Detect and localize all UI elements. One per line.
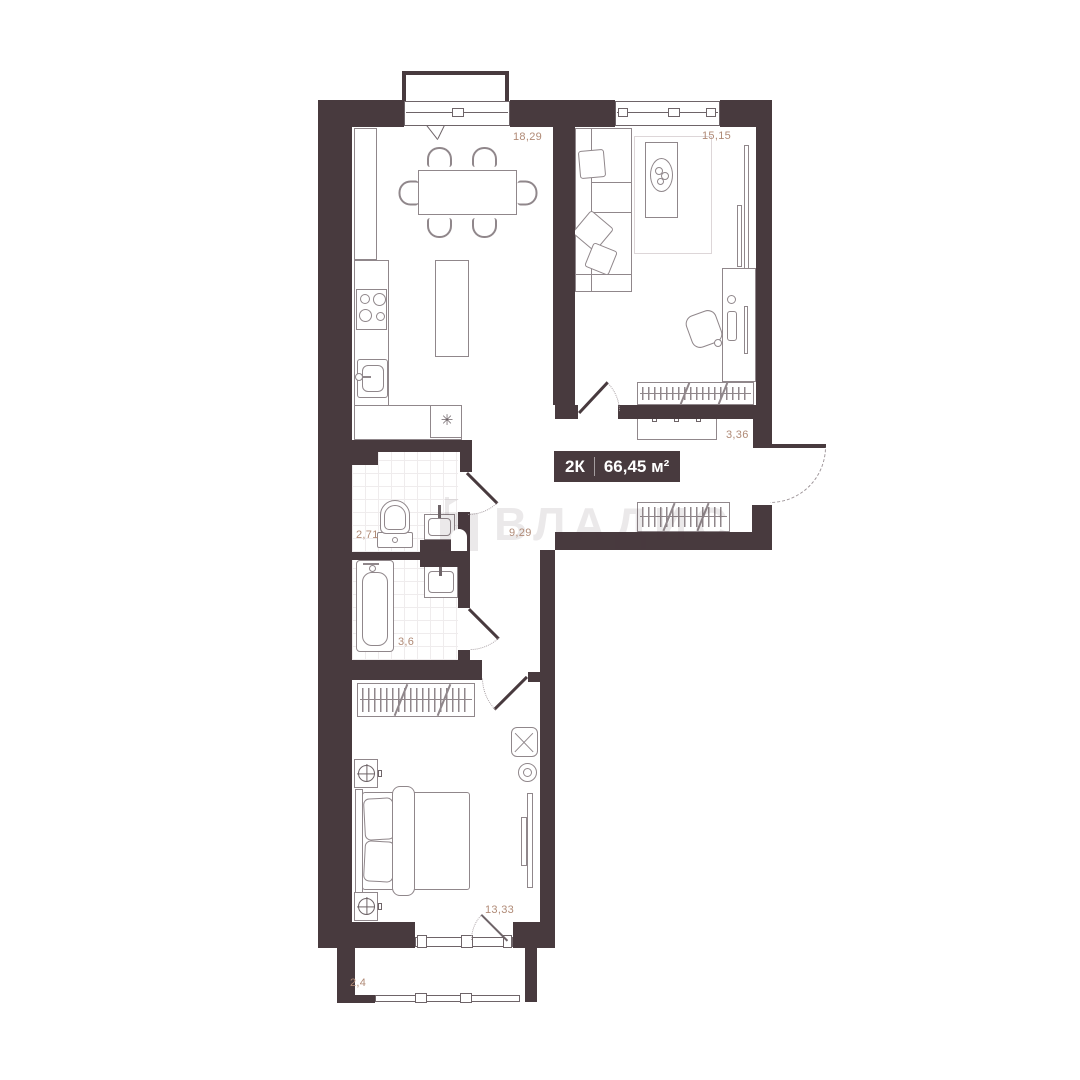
dining-table [418,170,517,215]
bedroom-shelf-midline [360,699,472,700]
wall-left [318,100,352,948]
balcony-top-box [402,71,509,104]
window-tick [417,935,427,948]
dining-chair [472,147,497,167]
stove-burner [373,293,386,306]
wall-jamb [460,440,472,472]
dining-chair [427,147,452,167]
wall-balcony-right [525,948,537,1002]
kitchen-counter-top [354,128,377,260]
nightstand-knob [378,903,382,910]
wall-bath-right [458,560,470,608]
dining-chair [472,218,497,238]
wall-living-bottom [618,405,753,419]
watermark: ВЛАДИС [436,497,734,551]
wall-top [318,100,404,127]
area-label-bathroom: 3,6 [398,636,414,648]
wall-balcony-bottom [337,995,375,1003]
wall-entrance-jamb [752,505,772,532]
wall-bath-right [458,650,470,660]
wall-bedroom-bottom [318,922,415,948]
wall-corridor-right [540,550,555,922]
stove-burner [376,312,385,321]
bathroom-faucet [439,567,442,576]
apartment-badge: 2К 66,45 м² [554,451,680,482]
stove-burner [359,309,372,322]
area-label-hallway: 3,36 [726,429,749,441]
wall-kitchen-bottom [352,440,472,452]
kitchen-sink-basin [362,365,384,392]
bed-blanket [392,786,415,896]
window-tick [460,993,472,1003]
area-label-living: 15,15 [702,130,731,142]
wall-right [756,100,772,448]
sofa-seat-line [591,212,632,213]
wall-bath-bedroom [352,660,482,680]
sofa-pillow [578,149,606,179]
badge-rooms: 2К [565,457,585,477]
nightstand-knob [378,770,382,777]
area-label-bedroom: 13,33 [485,904,514,916]
dining-chair [427,218,452,238]
area-label-balcony: 2,4 [350,977,366,989]
watermark-building-icon [436,497,482,551]
badge-area: 66,45 м² [604,457,670,477]
window-tick [452,108,464,117]
nightstand-lamp [358,898,375,915]
wall-balcony-left [337,948,355,1002]
kitchen-faucet [355,373,363,381]
sofa-seat-line [591,182,632,183]
window-tick [618,108,628,117]
wall-living-bottom [555,405,578,419]
wall-wc-bath [352,552,420,560]
bed-pillow [363,797,395,841]
watermark-text: ВЛАДИС [494,497,734,551]
bathtub-inner [362,572,388,646]
decor-item [657,178,664,185]
badge-divider [594,457,595,476]
bedroom-wardrobe-door [521,817,527,866]
kitchen-faucet-stem [363,376,371,378]
desk-monitor [744,306,748,354]
toilet-button [392,537,398,543]
area-label-wc: 2,71 [356,529,379,541]
area-label-kitchen: 18,29 [513,131,542,143]
dining-chair [518,181,538,206]
bookshelf-midline [640,393,751,394]
toilet-bowl-inner [384,505,406,530]
fridge-icon: ✳ [437,411,457,431]
kitchen-island [435,260,469,357]
bed-headboard [355,789,363,893]
nightstand-lamp [358,765,375,782]
bedroom-wardrobe-panel [527,793,533,888]
stove-burner [360,294,370,304]
wall-door-tick [528,672,540,682]
plant-inner [523,768,532,777]
wall-pilaster [352,452,378,465]
stool-x [511,727,538,757]
desk-lamp [727,295,736,304]
area-label-corridor: 9,29 [509,527,532,539]
tv-bracket [737,205,742,267]
wall-hall-corner [753,405,772,448]
desk-item [727,311,737,341]
window-tick [415,993,427,1003]
bathtub-tap [369,565,376,572]
wall-top [510,100,615,127]
window-tick [706,108,716,117]
bedroom-shelf [357,683,475,717]
window-tick [668,108,680,117]
desk-chair-knob [714,339,722,347]
dining-chair [399,181,419,206]
bed-pillow [363,840,395,883]
wall-kitchen-living [553,127,575,405]
balcony-window [375,995,520,1002]
wall-bedroom-corner [513,922,555,948]
floor-plan: ✳ [0,0,1080,1080]
